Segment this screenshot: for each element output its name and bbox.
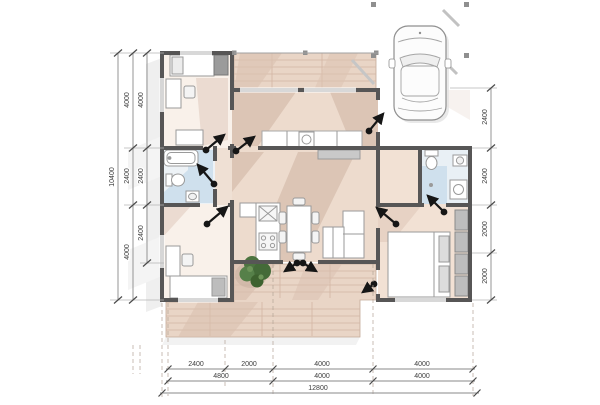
bed-icon bbox=[388, 232, 450, 297]
washbasin-icon bbox=[186, 191, 199, 202]
wardrobe-icon bbox=[214, 55, 228, 75]
washbasin-icon bbox=[453, 155, 467, 166]
bed-icon bbox=[170, 276, 227, 298]
dimension-label: 4000 bbox=[314, 373, 330, 380]
dimension-label: 4000 bbox=[124, 244, 131, 260]
hall-closet bbox=[262, 131, 362, 148]
bed-icon bbox=[170, 55, 214, 76]
tv-stand-icon bbox=[318, 150, 360, 159]
chair-icon bbox=[184, 86, 195, 98]
window bbox=[304, 88, 356, 93]
toilet-icon bbox=[166, 174, 185, 186]
dimension-label: 4000 bbox=[414, 361, 430, 368]
car-icon bbox=[389, 26, 451, 123]
window bbox=[160, 78, 165, 112]
dimension-label: 4800 bbox=[213, 373, 229, 380]
floor-plan-drawing: 10400 4000 2400 4000 4000 2400 2400 2400… bbox=[0, 0, 600, 405]
dimension-label: 2400 bbox=[482, 168, 489, 184]
dimension-label: 2400 bbox=[138, 168, 145, 184]
kitchen-sink-icon bbox=[259, 206, 277, 221]
dimension-label: 2400 bbox=[124, 168, 131, 184]
stove-icon bbox=[259, 233, 277, 250]
boiler-icon bbox=[299, 132, 314, 147]
window bbox=[240, 88, 298, 93]
dimension-label: 2400 bbox=[188, 361, 204, 368]
washing-machine-icon bbox=[450, 180, 467, 199]
toilet-icon bbox=[425, 150, 438, 170]
desk-icon bbox=[166, 79, 181, 108]
desk-icon bbox=[166, 246, 180, 276]
dimension-label: 4000 bbox=[138, 92, 145, 108]
dimension-label: 4000 bbox=[124, 92, 131, 108]
shower-drain-icon bbox=[430, 184, 433, 187]
dimension-label: 2000 bbox=[482, 221, 489, 237]
dimension-label: 10400 bbox=[109, 167, 116, 187]
dimension-label: 12800 bbox=[308, 385, 328, 392]
dimension-label: 2000 bbox=[241, 361, 257, 368]
window bbox=[180, 51, 212, 56]
dimension-label: 2000 bbox=[482, 268, 489, 284]
chair-icon bbox=[182, 254, 193, 266]
floor-plan-canvas: 10400 4000 2400 4000 4000 2400 2400 2400… bbox=[0, 0, 600, 405]
dimension-label: 4000 bbox=[314, 361, 330, 368]
window bbox=[395, 298, 446, 303]
dimension-label: 4000 bbox=[414, 373, 430, 380]
dresser-icon bbox=[176, 130, 203, 145]
dimension-label: 2400 bbox=[482, 109, 489, 125]
dimension-label: 2400 bbox=[138, 225, 145, 241]
window bbox=[178, 298, 218, 303]
bathtub-icon bbox=[164, 150, 198, 166]
